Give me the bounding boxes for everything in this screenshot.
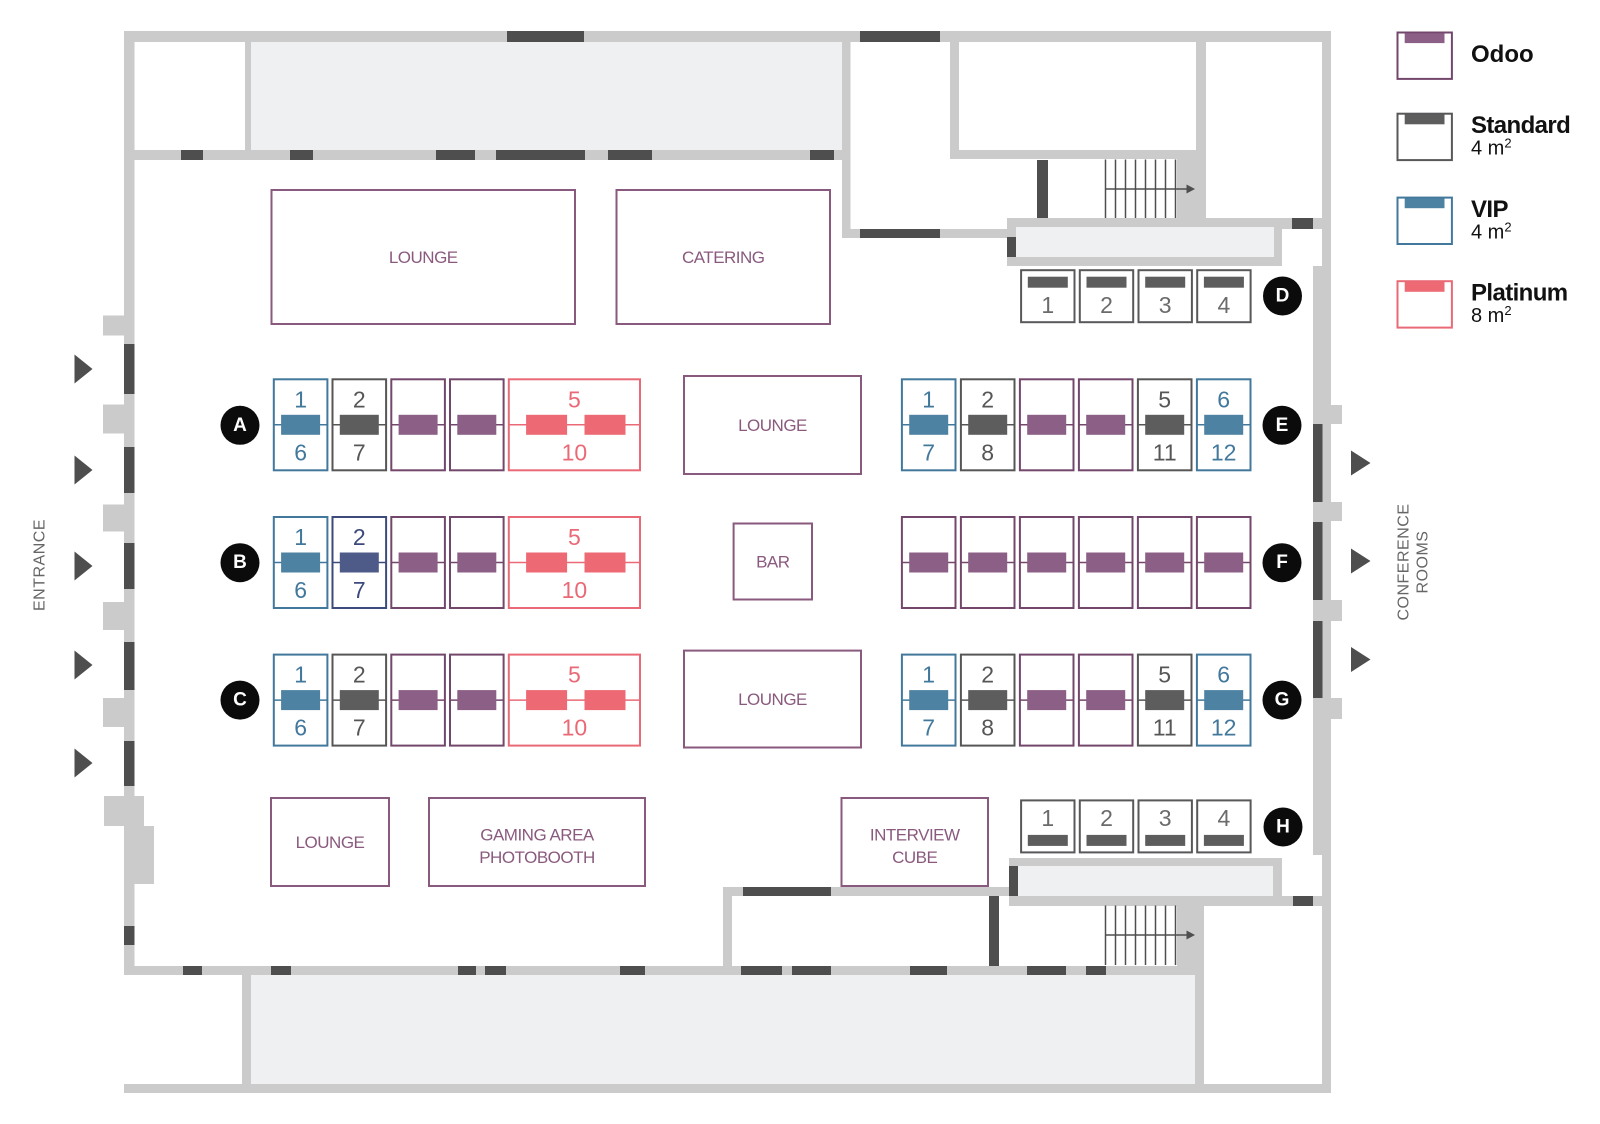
svg-text:5: 5 (1158, 662, 1171, 688)
svg-text:6: 6 (294, 439, 307, 465)
svg-text:7: 7 (922, 439, 935, 465)
svg-text:12: 12 (1211, 715, 1237, 741)
svg-text:1: 1 (294, 386, 307, 412)
svg-text:VIP: VIP (1471, 196, 1508, 223)
svg-text:LOUNGE: LOUNGE (389, 248, 458, 267)
svg-text:8: 8 (981, 715, 994, 741)
svg-text:2: 2 (981, 386, 994, 412)
svg-text:2: 2 (353, 386, 366, 412)
svg-text:10: 10 (562, 577, 588, 603)
svg-text:11: 11 (1153, 439, 1177, 465)
svg-text:D: D (1276, 286, 1290, 307)
svg-text:1: 1 (294, 524, 307, 550)
svg-text:Odoo: Odoo (1471, 41, 1534, 68)
svg-text:7: 7 (353, 577, 366, 603)
svg-text:CUBE: CUBE (892, 848, 937, 867)
svg-text:2: 2 (981, 662, 994, 688)
svg-text:5: 5 (1158, 386, 1171, 412)
svg-text:H: H (1276, 817, 1290, 838)
svg-text:7: 7 (922, 715, 935, 741)
svg-text:1: 1 (1041, 292, 1054, 318)
svg-text:E: E (1276, 415, 1289, 436)
svg-text:C: C (233, 690, 247, 711)
svg-text:11: 11 (1153, 715, 1177, 741)
svg-text:2: 2 (1100, 292, 1113, 318)
svg-text:4 m2: 4 m2 (1471, 135, 1512, 160)
svg-text:7: 7 (353, 715, 366, 741)
svg-text:G: G (1275, 690, 1290, 711)
svg-text:4 m2: 4 m2 (1471, 219, 1512, 244)
svg-text:A: A (233, 415, 247, 436)
svg-text:8: 8 (981, 439, 994, 465)
svg-text:10: 10 (562, 715, 588, 741)
svg-text:INTERVIEW: INTERVIEW (870, 826, 960, 845)
svg-text:3: 3 (1159, 805, 1172, 831)
svg-text:2: 2 (353, 662, 366, 688)
svg-text:8 m2: 8 m2 (1471, 303, 1512, 328)
svg-text:4: 4 (1218, 292, 1231, 318)
svg-text:LOUNGE: LOUNGE (738, 690, 807, 709)
svg-text:5: 5 (568, 524, 581, 550)
svg-text:7: 7 (353, 439, 366, 465)
svg-text:1: 1 (922, 386, 935, 412)
svg-text:1: 1 (1041, 805, 1054, 831)
svg-text:6: 6 (294, 577, 307, 603)
svg-text:10: 10 (562, 439, 588, 465)
svg-text:2: 2 (353, 524, 366, 550)
svg-text:GAMING AREA: GAMING AREA (480, 826, 595, 845)
svg-text:CATERING: CATERING (682, 248, 765, 267)
svg-text:6: 6 (1217, 386, 1230, 412)
svg-text:1: 1 (294, 662, 307, 688)
svg-text:Platinum: Platinum (1471, 280, 1568, 307)
svg-text:4: 4 (1218, 805, 1231, 831)
svg-text:6: 6 (1217, 662, 1230, 688)
svg-text:LOUNGE: LOUNGE (738, 416, 807, 435)
svg-text:2: 2 (1100, 805, 1113, 831)
svg-text:PHOTOBOOTH: PHOTOBOOTH (479, 848, 595, 867)
svg-text:5: 5 (568, 662, 581, 688)
svg-text:5: 5 (568, 386, 581, 412)
svg-text:F: F (1276, 552, 1288, 573)
svg-text:1: 1 (922, 662, 935, 688)
svg-text:12: 12 (1211, 439, 1237, 465)
svg-text:ROOMS: ROOMS (1415, 531, 1432, 594)
svg-text:Standard: Standard (1471, 112, 1570, 139)
svg-text:B: B (233, 552, 247, 573)
svg-text:ENTRANCE: ENTRANCE (32, 519, 49, 611)
svg-text:LOUNGE: LOUNGE (296, 833, 365, 852)
svg-text:BAR: BAR (756, 553, 790, 572)
svg-text:3: 3 (1159, 292, 1172, 318)
svg-text:6: 6 (294, 715, 307, 741)
svg-text:CONFERENCE: CONFERENCE (1396, 503, 1413, 620)
